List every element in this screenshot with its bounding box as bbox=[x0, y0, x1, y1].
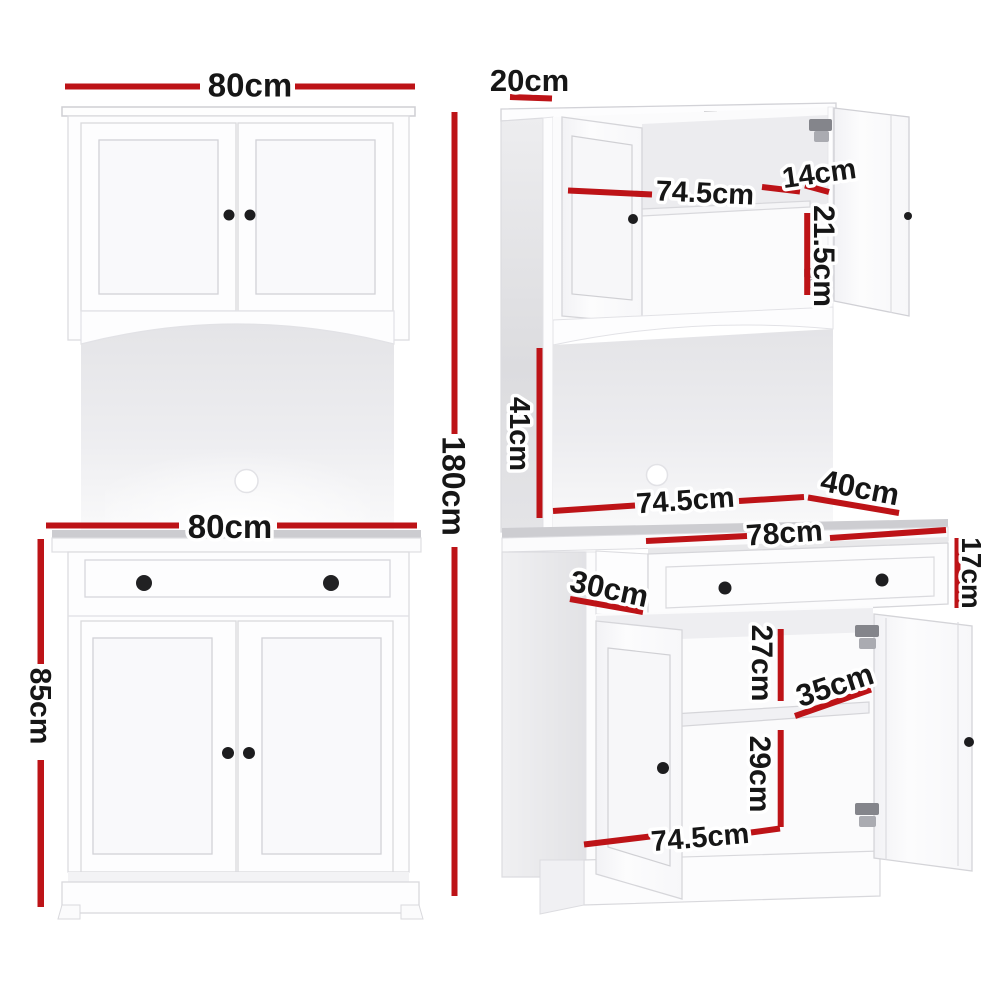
svg-text:78cm: 78cm bbox=[745, 514, 824, 552]
svg-text:29cm: 29cm bbox=[743, 736, 776, 813]
svg-text:17cm: 17cm bbox=[956, 537, 987, 609]
svg-text:80cm: 80cm bbox=[208, 67, 292, 104]
svg-text:85cm: 85cm bbox=[24, 668, 57, 745]
svg-text:21.5cm: 21.5cm bbox=[807, 205, 840, 307]
svg-text:74.5cm: 74.5cm bbox=[635, 482, 735, 521]
svg-text:20cm: 20cm bbox=[490, 63, 569, 98]
svg-text:180cm: 180cm bbox=[436, 436, 472, 536]
svg-text:80cm: 80cm bbox=[188, 508, 272, 545]
svg-text:41cm: 41cm bbox=[503, 397, 535, 471]
svg-text:27cm: 27cm bbox=[745, 625, 778, 702]
svg-text:74.5cm: 74.5cm bbox=[655, 175, 755, 211]
